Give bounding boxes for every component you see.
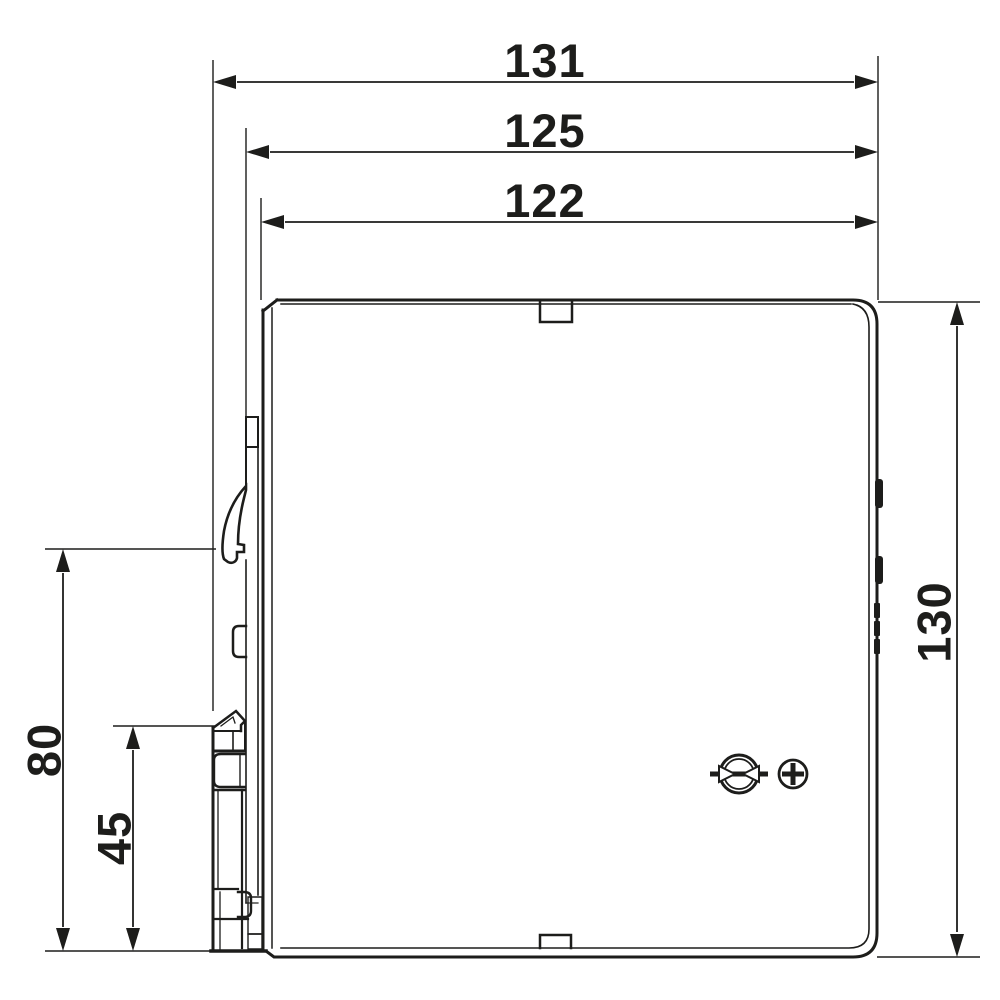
plus-circle-icon	[779, 760, 807, 788]
arrow-left	[261, 215, 284, 229]
dim-foot-span-45: 45	[88, 726, 141, 951]
housing-outline	[213, 300, 877, 957]
potentiometer-adjust-icon	[710, 755, 768, 793]
dim-label-housing-depth: 125	[504, 104, 585, 157]
latch-slider	[246, 417, 258, 447]
technical-drawing-page: 131 125 122 130	[0, 0, 1000, 1000]
device-body	[213, 300, 883, 957]
right-edge-clips	[874, 479, 883, 654]
dim-height: 130	[908, 302, 965, 957]
arrow-right	[855, 145, 878, 159]
latch-release-lever	[223, 486, 247, 563]
foot-hook	[213, 711, 245, 731]
arrow-top	[56, 549, 70, 572]
arrow-bottom	[950, 934, 964, 957]
latch-side-bump	[233, 626, 246, 657]
dimension-annotations: 131 125 122 130	[18, 34, 981, 957]
dim-housing-depth: 125	[246, 104, 878, 159]
dim-label-overall-depth: 131	[504, 34, 585, 87]
dim-label-height: 130	[908, 581, 961, 662]
foot-lower-tooth	[238, 892, 251, 917]
dim-latch-span-80: 80	[18, 549, 71, 951]
din-rail-latch	[211, 417, 266, 951]
arrow-bottom	[56, 928, 70, 951]
arrow-top	[950, 302, 964, 325]
arrow-bottom	[126, 928, 140, 951]
dim-front-depth: 122	[261, 174, 878, 229]
housing-top-left-chamfer	[263, 300, 277, 311]
bottom-notch	[540, 935, 571, 948]
dim-overall-depth: 131	[213, 34, 878, 89]
dimension-drawing-canvas: 131 125 122 130	[0, 0, 1000, 1000]
arrow-left	[246, 145, 269, 159]
arrow-right	[855, 215, 878, 229]
foot-column-lower	[248, 934, 262, 949]
arrow-right	[855, 75, 878, 89]
dim-label-foot-span: 45	[88, 811, 141, 865]
arrow-top	[126, 726, 140, 749]
dim-label-latch-span: 80	[18, 723, 71, 777]
front-symbols	[710, 755, 807, 793]
arrow-left	[213, 75, 236, 89]
housing-inner-right-bottom-line	[281, 304, 869, 948]
dim-label-front-depth: 122	[504, 174, 585, 227]
